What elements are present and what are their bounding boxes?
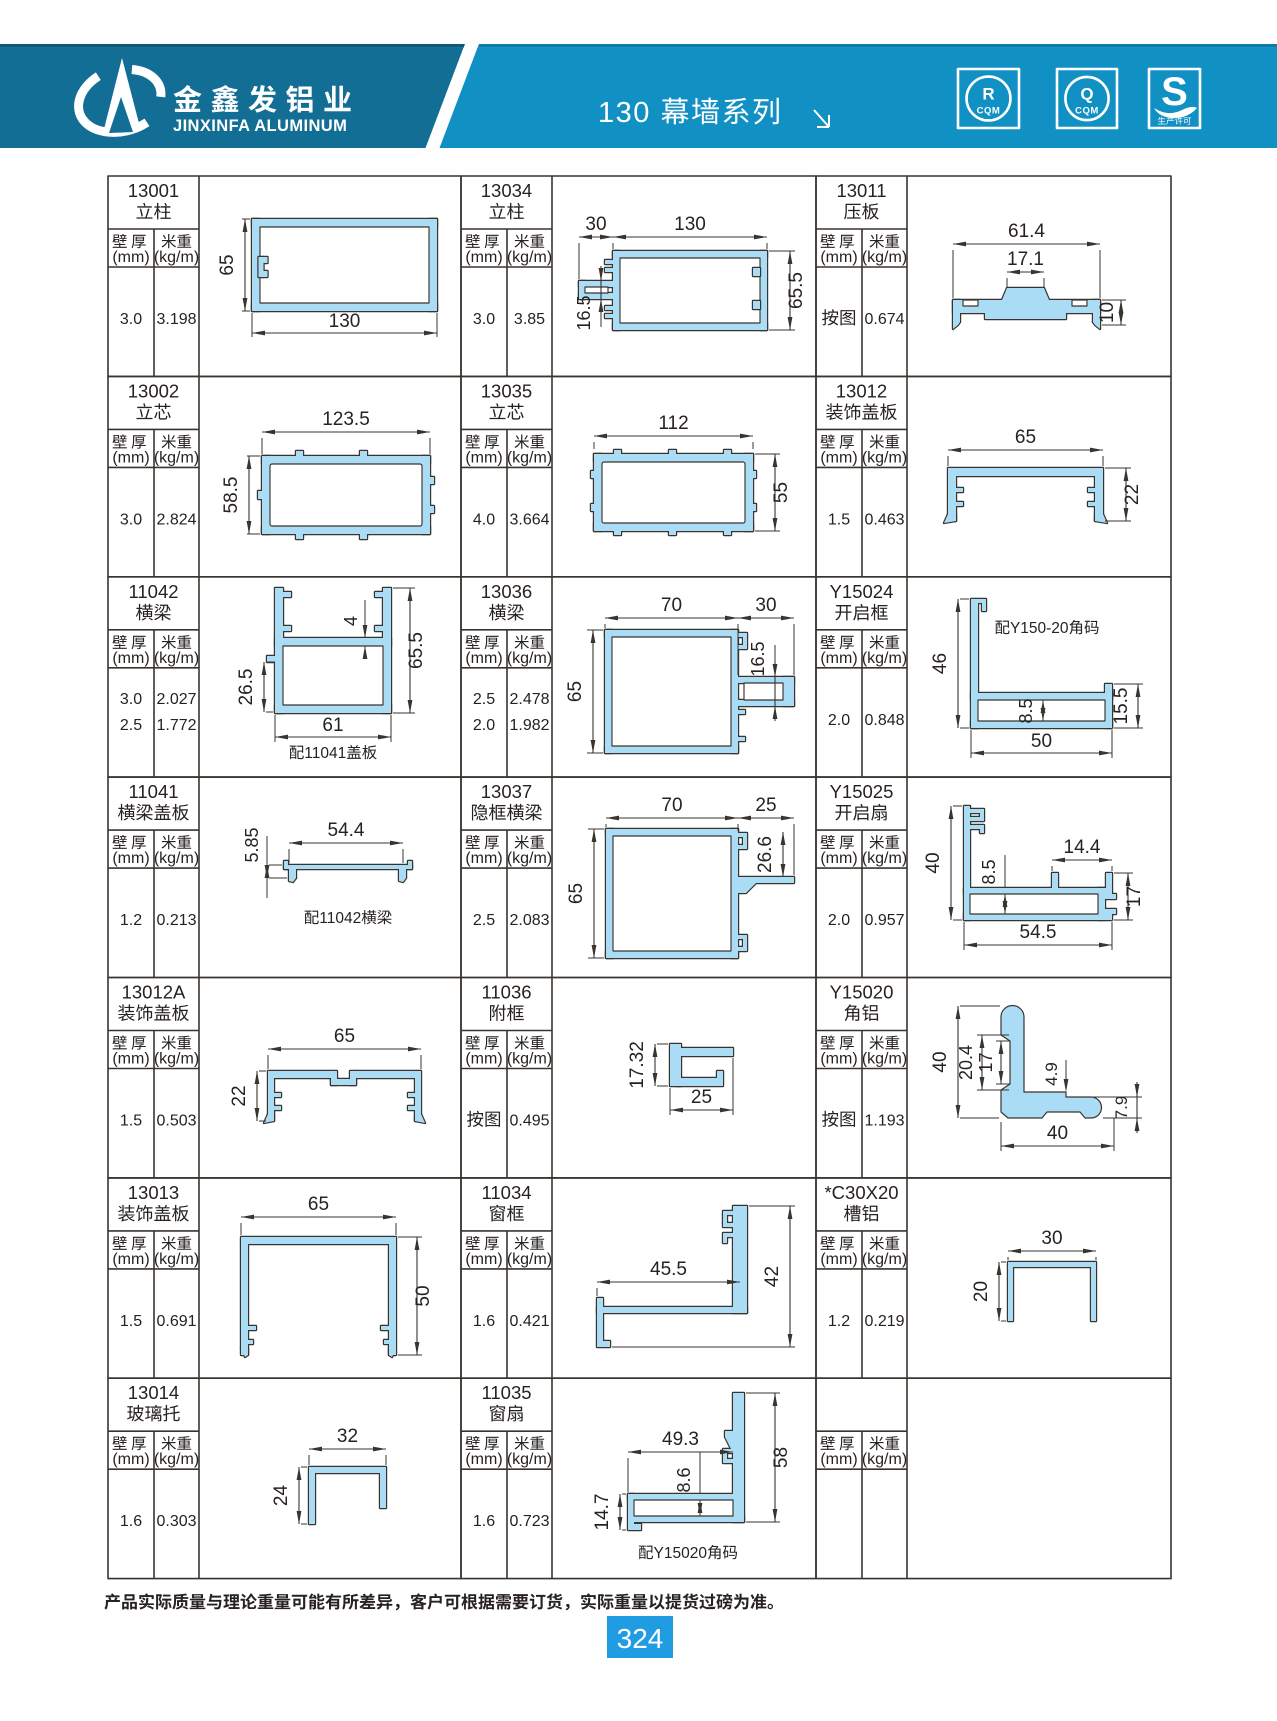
svg-text:0.421: 0.421 [509,1313,549,1330]
svg-text:横梁: 横梁 [489,603,525,623]
svg-text:(mm): (mm) [820,1251,857,1268]
svg-text:(kg/m): (kg/m) [507,449,552,466]
svg-text:61: 61 [322,715,343,736]
svg-text:(kg/m): (kg/m) [862,850,907,867]
svg-text:(mm): (mm) [465,850,502,867]
svg-text:装饰盖板: 装饰盖板 [118,1204,190,1224]
svg-text:11035: 11035 [481,1382,531,1403]
svg-text:(kg/m): (kg/m) [154,1051,199,1068]
svg-text:65: 65 [1015,427,1036,448]
svg-text:11034: 11034 [481,1182,531,1203]
svg-text:Y15020: Y15020 [830,982,894,1003]
svg-text:0.213: 0.213 [156,912,196,929]
svg-text:立柱: 立柱 [136,202,172,222]
svg-text:13012: 13012 [836,380,887,401]
svg-text:(mm): (mm) [112,650,149,667]
svg-text:(kg/m): (kg/m) [154,1451,199,1468]
svg-text:配Y15020角码: 配Y15020角码 [638,1544,738,1562]
svg-text:压板: 压板 [844,202,880,222]
svg-text:50: 50 [1031,731,1052,752]
svg-text:0.674: 0.674 [864,311,904,328]
svg-text:(kg/m): (kg/m) [507,249,552,266]
svg-text:(mm): (mm) [112,449,149,466]
svg-text:45.5: 45.5 [650,1259,687,1280]
svg-text:2.478: 2.478 [509,691,549,708]
svg-text:2.5: 2.5 [120,717,142,734]
svg-text:(mm): (mm) [820,650,857,667]
svg-text:30: 30 [755,595,776,616]
svg-text:装饰盖板: 装饰盖板 [118,1004,190,1024]
svg-text:1.772: 1.772 [156,717,196,734]
svg-text:1.6: 1.6 [473,1313,495,1330]
svg-text:13035: 13035 [481,380,532,401]
svg-text:1.6: 1.6 [473,1513,495,1530]
svg-text:15.5: 15.5 [1111,688,1132,725]
svg-text:61.4: 61.4 [1008,221,1045,242]
svg-text:Y15025: Y15025 [830,781,894,802]
svg-text:立芯: 立芯 [136,402,172,422]
svg-text:0.303: 0.303 [156,1513,196,1530]
svg-text:R: R [982,85,994,104]
svg-text:130: 130 [674,214,706,235]
svg-text:(kg/m): (kg/m) [507,1451,552,1468]
svg-text:17: 17 [976,1052,996,1072]
svg-text:0.848: 0.848 [864,712,904,729]
svg-text:(kg/m): (kg/m) [862,449,907,466]
svg-text:窗扇: 窗扇 [489,1404,525,1424]
svg-text:2.083: 2.083 [509,912,549,929]
svg-text:(kg/m): (kg/m) [507,650,552,667]
svg-text:*C30X20: *C30X20 [824,1182,898,1203]
svg-text:CQM: CQM [977,106,1001,117]
svg-text:金鑫发铝业: 金鑫发铝业 [173,85,361,117]
svg-text:26.5: 26.5 [236,669,257,706]
svg-text:配11041盖板: 配11041盖板 [289,744,377,762]
svg-text:按图: 按图 [467,1110,502,1130]
svg-text:(mm): (mm) [465,249,502,266]
svg-text:70: 70 [661,595,682,616]
svg-text:(kg/m): (kg/m) [507,1051,552,1068]
svg-text:(mm): (mm) [820,1451,857,1468]
svg-text:11041: 11041 [128,781,178,802]
svg-text:130: 130 [329,311,361,332]
svg-text:配Y150-20角码: 配Y150-20角码 [994,619,1099,637]
svg-text:(kg/m): (kg/m) [862,1251,907,1268]
svg-text:(mm): (mm) [112,249,149,266]
svg-text:13011: 13011 [836,180,886,201]
svg-text:(mm): (mm) [820,1051,857,1068]
svg-text:3.0: 3.0 [473,311,495,328]
svg-text:(mm): (mm) [465,1051,502,1068]
svg-text:1.6: 1.6 [120,1513,142,1530]
svg-text:槽铝: 槽铝 [844,1204,880,1224]
svg-text:54.4: 54.4 [328,820,365,841]
svg-text:123.5: 123.5 [322,409,370,430]
svg-text:(kg/m): (kg/m) [154,850,199,867]
svg-text:10: 10 [1097,302,1118,323]
svg-text:生产许可: 生产许可 [1157,116,1192,126]
svg-text:(mm): (mm) [465,1451,502,1468]
svg-text:17: 17 [1124,886,1145,907]
svg-text:58: 58 [771,1447,792,1468]
svg-text:(kg/m): (kg/m) [507,850,552,867]
svg-text:4: 4 [341,616,361,626]
svg-text:(mm): (mm) [820,249,857,266]
svg-text:65: 65 [308,1194,329,1215]
svg-text:(mm): (mm) [820,850,857,867]
svg-text:46: 46 [930,653,951,674]
svg-text:(kg/m): (kg/m) [154,249,199,266]
svg-text:(mm): (mm) [112,850,149,867]
svg-text:(mm): (mm) [820,449,857,466]
svg-text:(kg/m): (kg/m) [154,1251,199,1268]
svg-text:0.463: 0.463 [864,511,904,528]
svg-text:附框: 附框 [489,1004,525,1024]
svg-text:65: 65 [217,254,238,275]
svg-text:2.027: 2.027 [156,691,196,708]
svg-text:3.0: 3.0 [120,511,142,528]
svg-text:22: 22 [1122,484,1143,505]
svg-text:54.5: 54.5 [1020,922,1057,943]
svg-text:8.5: 8.5 [1016,698,1036,723]
svg-text:24: 24 [271,1485,292,1507]
svg-text:(kg/m): (kg/m) [507,1251,552,1268]
svg-text:3.0: 3.0 [120,311,142,328]
svg-text:Q: Q [1080,85,1093,104]
svg-text:1.193: 1.193 [864,1113,904,1130]
svg-text:(mm): (mm) [112,1251,149,1268]
svg-text:1.5: 1.5 [120,1313,142,1330]
svg-text:隐框横梁: 隐框横梁 [471,803,543,823]
svg-text:13013: 13013 [128,1182,179,1203]
svg-text:(mm): (mm) [112,1451,149,1468]
svg-text:(mm): (mm) [112,1051,149,1068]
svg-text:65: 65 [566,883,587,904]
svg-text:3.85: 3.85 [514,311,545,328]
svg-text:65.5: 65.5 [786,272,807,309]
svg-text:4.9: 4.9 [1042,1062,1061,1086]
svg-text:按图: 按图 [822,1110,857,1130]
svg-text:开启扇: 开启扇 [835,803,889,823]
svg-text:40: 40 [1047,1123,1068,1144]
svg-text:2.5: 2.5 [473,691,495,708]
svg-text:4.0: 4.0 [473,511,495,528]
svg-text:2.5: 2.5 [473,912,495,929]
svg-text:25: 25 [755,795,776,816]
svg-text:3.664: 3.664 [509,511,549,528]
svg-text:58.5: 58.5 [221,477,242,514]
svg-text:40: 40 [930,1051,951,1072]
svg-text:1.2: 1.2 [120,912,142,929]
svg-text:11042: 11042 [128,581,178,602]
svg-text:玻璃托: 玻璃托 [127,1404,181,1424]
svg-text:32: 32 [337,1426,358,1447]
svg-text:2.0: 2.0 [828,712,850,729]
svg-text:(mm): (mm) [465,449,502,466]
svg-text:13001: 13001 [128,180,179,201]
svg-text:55: 55 [771,482,792,503]
svg-text:0.957: 0.957 [864,912,904,929]
svg-text:8.5: 8.5 [979,859,999,884]
svg-text:配11042横梁: 配11042横梁 [304,909,392,927]
svg-text:Y15024: Y15024 [830,581,894,602]
svg-text:70: 70 [661,795,682,816]
svg-text:13034: 13034 [481,180,532,201]
svg-text:26.6: 26.6 [755,836,776,873]
svg-text:16.5: 16.5 [748,641,768,676]
svg-text:(kg/m): (kg/m) [154,449,199,466]
svg-text:(mm): (mm) [465,650,502,667]
svg-text:25: 25 [691,1087,712,1108]
svg-text:30: 30 [1041,1228,1062,1249]
svg-text:横梁盖板: 横梁盖板 [118,803,190,823]
svg-text:0.691: 0.691 [156,1313,196,1330]
svg-text:65: 65 [565,681,586,702]
svg-text:1.2: 1.2 [828,1313,850,1330]
svg-text:7.9: 7.9 [1112,1096,1131,1120]
svg-text:0.219: 0.219 [864,1313,904,1330]
svg-text:角铝: 角铝 [844,1004,880,1024]
svg-text:49.3: 49.3 [662,1429,699,1450]
svg-text:(kg/m): (kg/m) [154,650,199,667]
svg-text:2.824: 2.824 [156,511,196,528]
svg-text:0.495: 0.495 [509,1113,549,1130]
svg-text:(mm): (mm) [465,1251,502,1268]
svg-text:3.0: 3.0 [120,691,142,708]
svg-text:开启框: 开启框 [835,603,889,623]
svg-text:1.5: 1.5 [828,511,850,528]
svg-text:13012A: 13012A [122,982,186,1003]
svg-text:22: 22 [229,1085,250,1106]
svg-text:13002: 13002 [128,380,179,401]
svg-text:2.0: 2.0 [473,717,495,734]
svg-text:0.503: 0.503 [156,1113,196,1130]
svg-text:(kg/m): (kg/m) [862,1451,907,1468]
svg-text:130 幕墙系列: 130 幕墙系列 [598,97,782,129]
svg-text:立柱: 立柱 [489,202,525,222]
svg-text:横梁: 横梁 [136,603,172,623]
svg-text:17.32: 17.32 [627,1041,648,1089]
svg-text:17.1: 17.1 [1007,249,1044,270]
svg-text:13014: 13014 [128,1382,179,1403]
svg-text:1.5: 1.5 [120,1113,142,1130]
svg-text:11036: 11036 [481,982,531,1003]
svg-text:14.4: 14.4 [1064,837,1101,858]
svg-text:65.5: 65.5 [406,632,427,669]
svg-text:5.85: 5.85 [242,827,262,862]
svg-text:3.198: 3.198 [156,311,196,328]
svg-text:装饰盖板: 装饰盖板 [826,402,898,422]
svg-text:窗框: 窗框 [489,1204,525,1224]
svg-text:按图: 按图 [822,308,857,328]
svg-text:20.4: 20.4 [956,1045,976,1080]
svg-text:40: 40 [923,852,944,873]
svg-text:CQM: CQM [1075,106,1099,117]
svg-text:50: 50 [413,1285,434,1306]
svg-text:1.982: 1.982 [509,717,549,734]
svg-text:14.7: 14.7 [592,1494,613,1531]
svg-text:2.0: 2.0 [828,912,850,929]
svg-text:0.723: 0.723 [509,1513,549,1530]
svg-text:13036: 13036 [481,581,532,602]
svg-text:13037: 13037 [481,781,532,802]
svg-text:65: 65 [334,1026,355,1047]
svg-text:S: S [1161,70,1188,114]
svg-text:30: 30 [585,214,606,235]
svg-text:立芯: 立芯 [489,402,525,422]
svg-text:20: 20 [971,1281,992,1302]
svg-text:产品实际质量与理论重量可能有所差异，客户可根据需要订货，实际: 产品实际质量与理论重量可能有所差异，客户可根据需要订货，实际重量以提货过磅为准。 [104,1593,784,1612]
svg-text:16.5: 16.5 [574,295,594,330]
svg-text:42: 42 [762,1266,783,1287]
svg-text:112: 112 [658,413,688,434]
svg-text:(kg/m): (kg/m) [862,650,907,667]
svg-text:(kg/m): (kg/m) [862,1051,907,1068]
svg-text:324: 324 [617,1623,664,1654]
svg-text:JINXINFA ALUMINUM: JINXINFA ALUMINUM [173,117,347,135]
svg-text:8.6: 8.6 [674,1467,694,1492]
svg-text:(kg/m): (kg/m) [862,249,907,266]
